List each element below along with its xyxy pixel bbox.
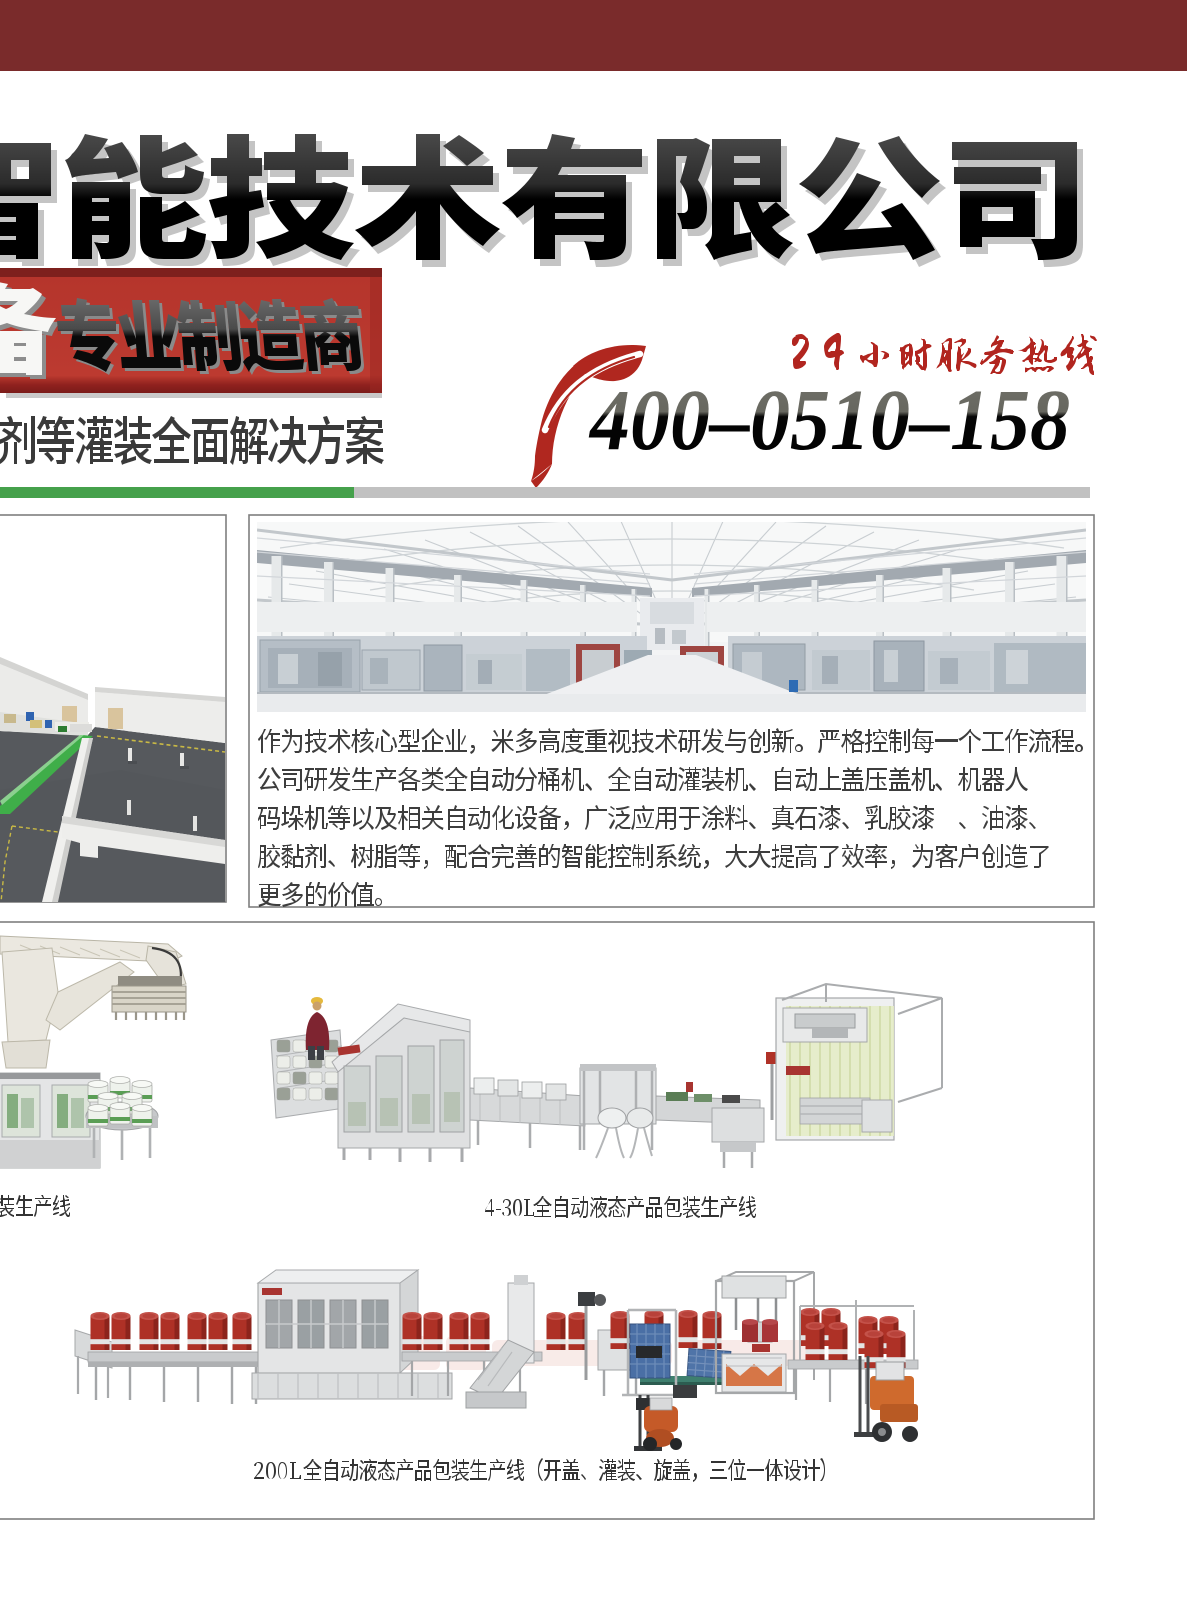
- svg-text:400–0510–158: 400–0510–158: [588, 371, 1070, 468]
